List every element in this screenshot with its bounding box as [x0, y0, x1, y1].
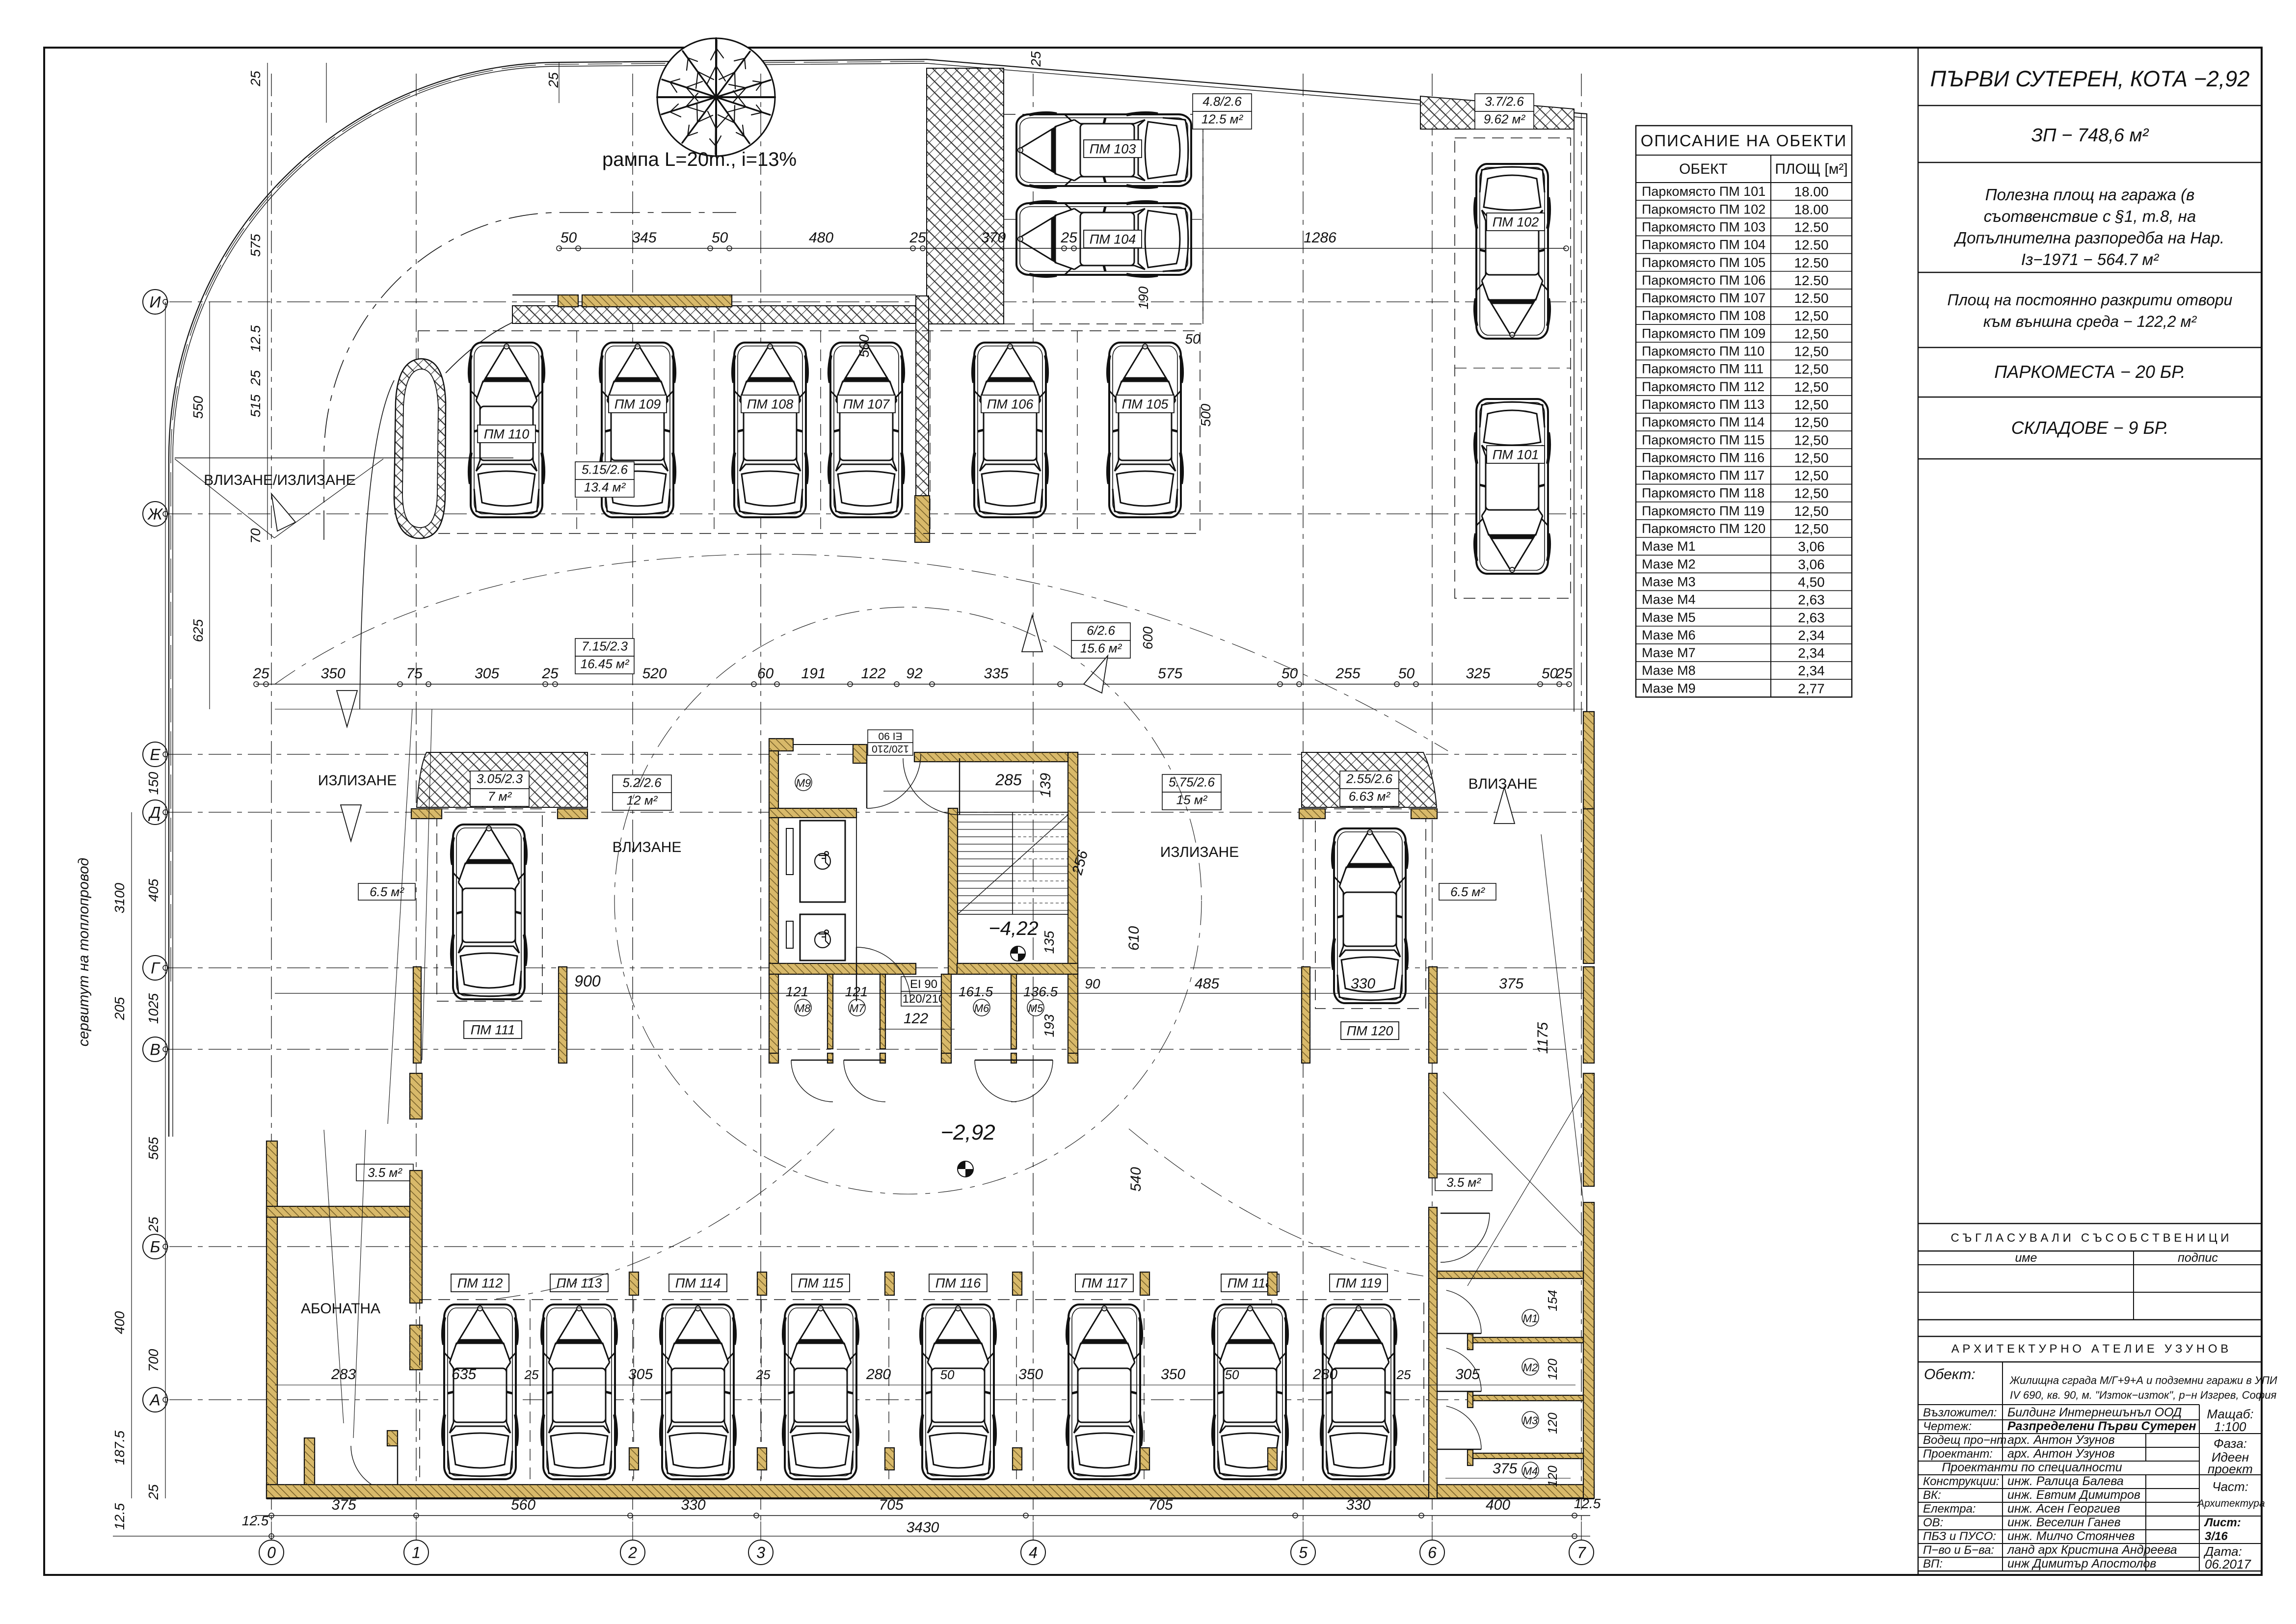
- svg-text:330: 330: [1346, 1497, 1370, 1513]
- svg-text:ЗП − 748,6 м²: ЗП − 748,6 м²: [2031, 125, 2149, 146]
- svg-text:154: 154: [1545, 1290, 1560, 1311]
- svg-text:Проектант:: Проектант:: [1923, 1447, 1993, 1461]
- svg-text:Паркомясто ПМ 111: Паркомясто ПМ 111: [1642, 362, 1763, 376]
- svg-text:Б: Б: [150, 1238, 160, 1256]
- svg-text:18.00: 18.00: [1794, 202, 1828, 217]
- svg-text:12.50: 12.50: [1794, 255, 1828, 270]
- svg-text:330: 330: [1351, 976, 1375, 992]
- svg-text:120: 120: [1545, 1358, 1560, 1380]
- svg-text:375: 375: [331, 1497, 356, 1513]
- svg-text:12,50: 12,50: [1794, 486, 1828, 501]
- svg-text:12,50: 12,50: [1794, 415, 1828, 430]
- svg-text:М6: М6: [974, 1002, 989, 1014]
- svg-text:ПМ 115: ПМ 115: [798, 1276, 844, 1291]
- svg-text:25: 25: [248, 71, 263, 87]
- svg-text:1: 1: [412, 1544, 421, 1562]
- svg-text:190: 190: [1136, 286, 1151, 309]
- svg-text:А Р Х И Т Е К Т У Р Н О А Т: А Р Х И Т Е К Т У Р Н О А Т Е Л И Е У З …: [1951, 1342, 2229, 1356]
- svg-text:12,50: 12,50: [1794, 504, 1828, 519]
- svg-text:50: 50: [561, 230, 577, 246]
- svg-text:5.15/2.6: 5.15/2.6: [582, 462, 628, 477]
- svg-text:Паркомясто ПМ 120: Паркомясто ПМ 120: [1642, 521, 1765, 536]
- svg-text:12.50: 12.50: [1794, 291, 1828, 306]
- svg-text:сервитут на топлопровод: сервитут на топлопровод: [76, 858, 92, 1047]
- svg-text:ПМ 103: ПМ 103: [1090, 142, 1136, 157]
- svg-text:ПМ 114: ПМ 114: [675, 1276, 721, 1291]
- svg-text:705: 705: [1148, 1497, 1173, 1513]
- svg-text:Мазе М6: Мазе М6: [1642, 628, 1696, 642]
- svg-text:25: 25: [146, 1217, 161, 1233]
- svg-text:9.62 м²: 9.62 м²: [1484, 112, 1526, 127]
- svg-text:ИЗЛИЗАНЕ: ИЗЛИЗАНЕ: [1160, 844, 1239, 860]
- svg-text:50: 50: [1225, 1367, 1239, 1382]
- svg-text:инж Димитър Апостолов: инж Димитър Апостолов: [2007, 1557, 2156, 1571]
- svg-text:6: 6: [1428, 1544, 1437, 1562]
- svg-text:Архитектура: Архитектура: [2196, 1498, 2265, 1509]
- svg-text:3100: 3100: [112, 882, 127, 913]
- svg-text:Паркомясто ПМ 105: Паркомясто ПМ 105: [1642, 255, 1765, 270]
- svg-text:ПМ 106: ПМ 106: [987, 397, 1034, 412]
- svg-text:191: 191: [801, 666, 826, 682]
- svg-text:Чертеж:: Чертеж:: [1923, 1420, 1972, 1433]
- svg-text:1:100: 1:100: [2214, 1419, 2246, 1434]
- svg-text:350: 350: [1018, 1366, 1043, 1383]
- svg-text:Паркомясто ПМ 117: Паркомясто ПМ 117: [1642, 468, 1764, 483]
- svg-text:1175: 1175: [1535, 1022, 1551, 1054]
- svg-text:375: 375: [1499, 976, 1523, 992]
- svg-text:М4: М4: [1523, 1465, 1538, 1477]
- svg-text:Мазе М1: Мазе М1: [1642, 539, 1696, 554]
- svg-text:500: 500: [856, 334, 872, 357]
- svg-text:12.50: 12.50: [1794, 238, 1828, 253]
- svg-text:120/210: 120/210: [872, 743, 909, 754]
- svg-text:В: В: [150, 1041, 160, 1059]
- svg-text:25: 25: [1060, 230, 1077, 246]
- svg-text:рампа L=20m., i=13%: рампа L=20m., i=13%: [602, 149, 797, 170]
- svg-text:280: 280: [1312, 1366, 1337, 1383]
- svg-text:Паркомясто ПМ 103: Паркомясто ПМ 103: [1642, 219, 1765, 234]
- svg-text:Конструкции:: Конструкции:: [1923, 1475, 1999, 1488]
- svg-text:Мазе М9: Мазе М9: [1642, 681, 1696, 695]
- svg-text:280: 280: [866, 1366, 891, 1383]
- svg-text:Iз−1971 − 564.7 м²: Iз−1971 − 564.7 м²: [2021, 250, 2159, 268]
- svg-text:3: 3: [756, 1544, 765, 1562]
- svg-text:ПМ 119: ПМ 119: [1336, 1276, 1382, 1291]
- svg-text:12.5: 12.5: [1574, 1496, 1601, 1511]
- svg-text:Паркомясто ПМ 115: Паркомясто ПМ 115: [1642, 432, 1764, 447]
- svg-text:135: 135: [1041, 931, 1057, 954]
- svg-text:12.5: 12.5: [112, 1503, 127, 1530]
- svg-text:305: 305: [628, 1366, 653, 1383]
- svg-text:Д: Д: [148, 804, 161, 822]
- svg-text:12,50: 12,50: [1794, 397, 1828, 412]
- svg-text:400: 400: [1486, 1497, 1510, 1513]
- svg-text:12,50: 12,50: [1794, 362, 1828, 377]
- svg-text:335: 335: [984, 666, 1008, 682]
- svg-text:−4,22: −4,22: [988, 918, 1038, 939]
- svg-text:12,50: 12,50: [1794, 468, 1828, 483]
- svg-text:121: 121: [845, 984, 868, 999]
- svg-text:М1: М1: [1523, 1312, 1538, 1325]
- svg-text:ПМ 109: ПМ 109: [614, 397, 661, 412]
- svg-text:Паркомясто ПМ 110: Паркомясто ПМ 110: [1642, 344, 1764, 359]
- svg-text:Жилищна сграда М/Г+9+А и подзе: Жилищна сграда М/Г+9+А и подземни гаражи…: [2009, 1374, 2277, 1386]
- svg-text:ПМ 120: ПМ 120: [1347, 1024, 1393, 1038]
- svg-text:подпис: подпис: [2178, 1251, 2218, 1265]
- svg-text:540: 540: [1128, 1167, 1144, 1192]
- svg-text:ПМ 110: ПМ 110: [484, 427, 530, 442]
- svg-text:255: 255: [1335, 666, 1360, 682]
- svg-text:330: 330: [681, 1497, 705, 1513]
- svg-text:Паркомясто ПМ 107: Паркомясто ПМ 107: [1642, 291, 1765, 305]
- svg-text:ПМ 116: ПМ 116: [935, 1276, 982, 1291]
- svg-text:Площ на постоянно разкрити: Площ на постоянно разкрити отвори: [1948, 291, 2233, 309]
- svg-text:2,34: 2,34: [1798, 628, 1825, 643]
- svg-text:арх. Антон Узунов: арх. Антон Узунов: [2007, 1447, 2115, 1461]
- svg-text:Паркомясто ПМ 114: Паркомясто ПМ 114: [1642, 415, 1764, 429]
- svg-text:625: 625: [190, 619, 206, 642]
- svg-text:12.50: 12.50: [1794, 219, 1828, 235]
- svg-text:193: 193: [1041, 1014, 1057, 1037]
- svg-text:18.00: 18.00: [1794, 184, 1828, 199]
- svg-text:Е: Е: [150, 746, 160, 764]
- svg-text:Паркомясто ПМ 102: Паркомясто ПМ 102: [1642, 202, 1765, 216]
- svg-text:12.5: 12.5: [248, 325, 263, 352]
- svg-text:7: 7: [1577, 1544, 1586, 1562]
- svg-text:име: име: [2015, 1251, 2037, 1265]
- svg-text:М7: М7: [850, 1002, 865, 1014]
- svg-text:М9: М9: [796, 777, 811, 789]
- svg-text:25: 25: [252, 666, 269, 682]
- svg-text:325: 325: [1466, 666, 1490, 682]
- svg-text:проект: проект: [2208, 1462, 2253, 1476]
- svg-text:375: 375: [1493, 1461, 1517, 1477]
- svg-text:3.7/2.6: 3.7/2.6: [1485, 94, 1524, 109]
- svg-text:Мазе М7: Мазе М7: [1642, 645, 1696, 660]
- svg-text:3430: 3430: [907, 1519, 939, 1536]
- svg-text:5.75/2.6: 5.75/2.6: [1169, 775, 1215, 790]
- svg-text:С Ъ Г Л А С У В А Л И С Ъ С: С Ъ Г Л А С У В А Л И С Ъ С О Б С Т В Е …: [1950, 1231, 2229, 1245]
- svg-text:инж. Милчо Стоянчев: инж. Милчо Стоянчев: [2007, 1529, 2135, 1543]
- svg-text:ПМ 117: ПМ 117: [1082, 1276, 1128, 1291]
- svg-text:121: 121: [786, 984, 809, 999]
- svg-text:25: 25: [546, 72, 561, 88]
- svg-text:1286: 1286: [1304, 230, 1336, 246]
- svg-text:Мазе М5: Мазе М5: [1642, 610, 1696, 625]
- svg-text:12.5: 12.5: [242, 1513, 269, 1528]
- svg-text:ПМ 104: ПМ 104: [1090, 232, 1136, 247]
- svg-text:2,63: 2,63: [1798, 592, 1825, 608]
- svg-text:25: 25: [1396, 1367, 1411, 1382]
- svg-text:700: 700: [146, 1349, 161, 1372]
- svg-text:7.15/2.3: 7.15/2.3: [582, 639, 628, 654]
- svg-text:ВЛИЗАНЕ/ИЗЛИЗАНЕ: ВЛИЗАНЕ/ИЗЛИЗАНЕ: [204, 472, 355, 488]
- svg-text:4: 4: [1029, 1544, 1038, 1562]
- svg-text:25: 25: [756, 1367, 771, 1382]
- svg-text:3.5 м²: 3.5 м²: [1446, 1175, 1481, 1190]
- svg-text:IV 690, кв. 90, м. "Изток−и: IV 690, кв. 90, м. "Изток−изток", р−н Из…: [2010, 1389, 2276, 1401]
- svg-text:Разпределени Първи Сутерен: Разпределени Първи Сутерен: [2007, 1419, 2196, 1433]
- svg-text:6/2.6: 6/2.6: [1087, 623, 1115, 638]
- svg-text:2,77: 2,77: [1798, 681, 1825, 696]
- svg-text:50: 50: [940, 1367, 955, 1382]
- svg-text:Част:: Част:: [2212, 1479, 2248, 1494]
- svg-text:2.55/2.6: 2.55/2.6: [1346, 772, 1393, 786]
- svg-text:2: 2: [628, 1544, 637, 1562]
- svg-text:М2: М2: [1523, 1361, 1538, 1374]
- svg-text:575: 575: [1158, 666, 1182, 682]
- svg-text:12.5 м²: 12.5 м²: [1201, 112, 1244, 127]
- svg-text:122: 122: [904, 1011, 928, 1027]
- svg-text:345: 345: [632, 230, 656, 246]
- svg-text:139: 139: [1038, 773, 1054, 798]
- svg-text:ПМ 105: ПМ 105: [1122, 397, 1169, 412]
- svg-text:Фаза:: Фаза:: [2214, 1436, 2247, 1451]
- svg-text:ланд арх Кристина Андреева: ланд арх Кристина Андреева: [2006, 1543, 2177, 1557]
- svg-text:25: 25: [541, 666, 559, 682]
- svg-text:705: 705: [879, 1497, 903, 1513]
- svg-text:150: 150: [146, 772, 161, 795]
- svg-text:2,34: 2,34: [1798, 663, 1825, 678]
- svg-text:ОВ:: ОВ:: [1923, 1516, 1943, 1529]
- svg-text:60: 60: [757, 666, 774, 682]
- svg-text:25: 25: [248, 370, 263, 386]
- svg-text:Ж: Ж: [147, 506, 163, 523]
- svg-text:13.4 м²: 13.4 м²: [584, 480, 626, 495]
- svg-text:инж. Евтим Димитров: инж. Евтим Димитров: [2007, 1488, 2140, 1502]
- svg-text:ПЛОЩ [м²]: ПЛОЩ [м²]: [1775, 161, 1847, 177]
- svg-text:50: 50: [712, 230, 728, 246]
- svg-text:Паркомясто ПМ 113: Паркомясто ПМ 113: [1642, 397, 1764, 412]
- svg-text:16.45 м²: 16.45 м²: [581, 657, 630, 671]
- svg-text:3.05/2.3: 3.05/2.3: [477, 772, 523, 786]
- svg-text:25: 25: [524, 1367, 539, 1382]
- svg-text:Паркомясто ПМ 108: Паркомясто ПМ 108: [1642, 308, 1765, 323]
- svg-text:арх. Антон Узунов: арх. Антон Узунов: [2007, 1433, 2115, 1447]
- svg-text:75: 75: [406, 666, 423, 682]
- svg-text:ПМ 111: ПМ 111: [471, 1023, 515, 1038]
- svg-text:2,63: 2,63: [1798, 610, 1825, 625]
- svg-text:СКЛАДОВЕ − 9 БР.: СКЛАДОВЕ − 9 БР.: [2011, 418, 2169, 438]
- svg-text:3.5 м²: 3.5 м²: [368, 1165, 402, 1180]
- svg-text:900: 900: [574, 972, 601, 990]
- svg-text:АБОНАТНА: АБОНАТНА: [301, 1301, 380, 1317]
- svg-text:съотвенствие с §1, т.8, на: съотвенствие с §1, т.8, на: [1984, 207, 2196, 225]
- svg-text:550: 550: [190, 396, 206, 419]
- svg-text:187.5: 187.5: [112, 1431, 127, 1465]
- svg-text:М3: М3: [1523, 1414, 1538, 1427]
- svg-text:ОБЕКТ: ОБЕКТ: [1679, 161, 1728, 177]
- svg-text:ПАРКОМЕСТА − 20 БР.: ПАРКОМЕСТА − 20 БР.: [1994, 362, 2185, 382]
- svg-text:ПЪРВИ СУТЕРЕН, КОТА −2,92: ПЪРВИ СУТЕРЕН, КОТА −2,92: [1930, 66, 2250, 91]
- svg-text:120/210: 120/210: [903, 992, 945, 1006]
- svg-text:Проектанти по специалности: Проектанти по специалности: [1942, 1461, 2122, 1474]
- svg-text:ОПИСАНИЕ НА ОБЕКТИ: ОПИСАНИЕ НА ОБЕКТИ: [1641, 132, 1847, 150]
- svg-text:635: 635: [452, 1366, 476, 1383]
- svg-text:485: 485: [1195, 976, 1219, 992]
- svg-text:3,06: 3,06: [1798, 539, 1825, 554]
- svg-text:25: 25: [146, 1484, 161, 1500]
- svg-text:500: 500: [1198, 403, 1213, 426]
- svg-text:12,50: 12,50: [1794, 450, 1828, 465]
- svg-text:12.50: 12.50: [1794, 273, 1828, 288]
- svg-text:70: 70: [248, 528, 263, 544]
- svg-text:Паркомясто ПМ 119: Паркомясто ПМ 119: [1642, 504, 1764, 518]
- svg-text:Паркомясто ПМ 106: Паркомясто ПМ 106: [1642, 273, 1765, 288]
- svg-text:600: 600: [1140, 626, 1155, 649]
- svg-text:12,50: 12,50: [1794, 432, 1828, 448]
- svg-text:7 м²: 7 м²: [488, 789, 512, 804]
- svg-text:6.5 м²: 6.5 м²: [1450, 884, 1485, 899]
- svg-text:136.5: 136.5: [1023, 984, 1058, 999]
- svg-text:ВЛИЗАНЕ: ВЛИЗАНЕ: [613, 839, 682, 855]
- svg-text:М5: М5: [1028, 1002, 1043, 1014]
- svg-text:515: 515: [248, 394, 263, 417]
- svg-text:15 м²: 15 м²: [1176, 793, 1208, 807]
- svg-text:Полезна площ на гаража (в: Полезна площ на гаража (в: [1985, 186, 2195, 204]
- svg-text:305: 305: [1455, 1366, 1480, 1383]
- svg-text:12,50: 12,50: [1794, 308, 1828, 323]
- svg-text:ПМ 112: ПМ 112: [457, 1276, 503, 1291]
- svg-text:610: 610: [1126, 926, 1142, 951]
- svg-text:Паркомясто ПМ 118: Паркомясто ПМ 118: [1642, 486, 1764, 501]
- svg-text:480: 480: [809, 230, 833, 246]
- svg-text:ВК:: ВК:: [1923, 1489, 1941, 1502]
- svg-text:ИЗЛИЗАНЕ: ИЗЛИЗАНЕ: [318, 772, 397, 789]
- svg-text:6.63 м²: 6.63 м²: [1349, 789, 1391, 804]
- svg-text:25: 25: [1028, 51, 1043, 67]
- svg-text:06.2017: 06.2017: [2205, 1557, 2252, 1571]
- svg-text:120: 120: [1545, 1412, 1560, 1434]
- svg-text:4,50: 4,50: [1798, 574, 1825, 589]
- svg-text:90: 90: [1085, 976, 1100, 991]
- svg-text:305: 305: [475, 666, 499, 682]
- svg-text:3/16: 3/16: [2205, 1530, 2228, 1543]
- svg-text:25: 25: [1555, 666, 1573, 682]
- svg-text:ПБЗ и ПУСО:: ПБЗ и ПУСО:: [1923, 1530, 1996, 1543]
- svg-text:Паркомясто ПМ 104: Паркомясто ПМ 104: [1642, 238, 1765, 252]
- svg-text:инж. Ралица Балева: инж. Ралица Балева: [2007, 1474, 2124, 1488]
- svg-text:405: 405: [146, 879, 161, 902]
- svg-text:285: 285: [995, 771, 1022, 789]
- svg-text:инж. Веселин Ганев: инж. Веселин Ганев: [2007, 1516, 2121, 1529]
- svg-text:1025: 1025: [146, 993, 161, 1024]
- svg-text:Лист:: Лист:: [2204, 1516, 2241, 1529]
- svg-text:И: И: [150, 293, 161, 311]
- svg-text:12,50: 12,50: [1794, 326, 1828, 341]
- svg-text:А: А: [149, 1391, 160, 1409]
- svg-text:3,06: 3,06: [1798, 557, 1825, 572]
- svg-text:575: 575: [248, 234, 263, 257]
- svg-text:122: 122: [861, 666, 885, 682]
- svg-text:161.5: 161.5: [959, 984, 993, 999]
- svg-text:560: 560: [511, 1497, 535, 1513]
- svg-text:0: 0: [267, 1544, 276, 1562]
- svg-text:12,50: 12,50: [1794, 344, 1828, 359]
- svg-text:Паркомясто ПМ 116: Паркомясто ПМ 116: [1642, 450, 1764, 465]
- svg-text:12,50: 12,50: [1794, 521, 1828, 536]
- svg-text:ПМ 102: ПМ 102: [1493, 215, 1539, 230]
- svg-text:350: 350: [320, 666, 345, 682]
- svg-text:15.6 м²: 15.6 м²: [1080, 641, 1122, 656]
- svg-text:Билдинг Интернешънъл ООД: Билдинг Интернешънъл ООД: [2007, 1406, 2182, 1419]
- svg-text:Г: Г: [151, 959, 160, 977]
- svg-text:EI 90: EI 90: [910, 978, 937, 991]
- svg-text:ПМ 118: ПМ 118: [1228, 1276, 1273, 1291]
- svg-text:50: 50: [1398, 666, 1415, 682]
- svg-text:Паркомясто ПМ 112: Паркомясто ПМ 112: [1642, 379, 1764, 394]
- svg-text:25: 25: [909, 230, 926, 246]
- svg-text:92: 92: [906, 666, 923, 682]
- svg-text:ПМ 108: ПМ 108: [747, 397, 794, 412]
- svg-text:400: 400: [112, 1311, 127, 1334]
- svg-text:283: 283: [331, 1366, 356, 1383]
- svg-text:EI 90: EI 90: [878, 730, 902, 742]
- svg-text:към външна среда − 122,2: към външна среда − 122,2 м²: [1983, 313, 2197, 330]
- svg-text:Мазе М8: Мазе М8: [1642, 663, 1696, 678]
- svg-text:инж. Асен Георгиев: инж. Асен Георгиев: [2007, 1502, 2120, 1516]
- svg-text:4.8/2.6: 4.8/2.6: [1202, 94, 1242, 109]
- svg-text:Допълнителна разпоредба на: Допълнителна разпоредба на Нар.: [1953, 229, 2224, 247]
- svg-text:565: 565: [146, 1137, 161, 1160]
- svg-text:Възложител:: Възложител:: [1923, 1406, 1997, 1419]
- svg-text:Паркомясто ПМ 109: Паркомясто ПМ 109: [1642, 326, 1765, 341]
- svg-text:120: 120: [1545, 1465, 1560, 1487]
- svg-text:Водещ про−нт: Водещ про−нт: [1923, 1434, 2006, 1447]
- svg-text:2,34: 2,34: [1798, 645, 1825, 661]
- svg-text:ВЛИЗАНЕ: ВЛИЗАНЕ: [1468, 776, 1538, 792]
- svg-text:ВП:: ВП:: [1923, 1557, 1943, 1571]
- svg-text:ПМ 101: ПМ 101: [1493, 448, 1539, 462]
- svg-text:ПМ 107: ПМ 107: [843, 397, 890, 412]
- svg-text:−2,92: −2,92: [940, 1120, 995, 1145]
- svg-text:Мазе М4: Мазе М4: [1642, 592, 1696, 607]
- svg-text:ПМ 113: ПМ 113: [557, 1276, 602, 1291]
- svg-text:5.2/2.6: 5.2/2.6: [622, 775, 662, 790]
- svg-text:М8: М8: [796, 1002, 811, 1014]
- svg-text:6.5 м²: 6.5 м²: [370, 884, 404, 899]
- svg-text:5: 5: [1299, 1544, 1308, 1562]
- svg-text:350: 350: [1161, 1366, 1185, 1383]
- svg-text:520: 520: [642, 666, 667, 682]
- svg-text:Мазе М3: Мазе М3: [1642, 574, 1696, 589]
- svg-text:Обект:: Обект:: [1924, 1366, 1976, 1383]
- svg-text:Електра:: Електра:: [1923, 1502, 1976, 1516]
- svg-text:12 м²: 12 м²: [627, 793, 658, 808]
- svg-text:Паркомясто ПМ 101: Паркомясто ПМ 101: [1642, 184, 1765, 199]
- svg-text:П−во и Б−ва:: П−во и Б−ва:: [1923, 1544, 1994, 1557]
- svg-text:370: 370: [981, 230, 1006, 246]
- svg-text:50: 50: [1185, 331, 1201, 346]
- svg-text:12,50: 12,50: [1794, 379, 1828, 395]
- svg-text:205: 205: [112, 997, 127, 1020]
- svg-text:Мазе М2: Мазе М2: [1642, 557, 1696, 571]
